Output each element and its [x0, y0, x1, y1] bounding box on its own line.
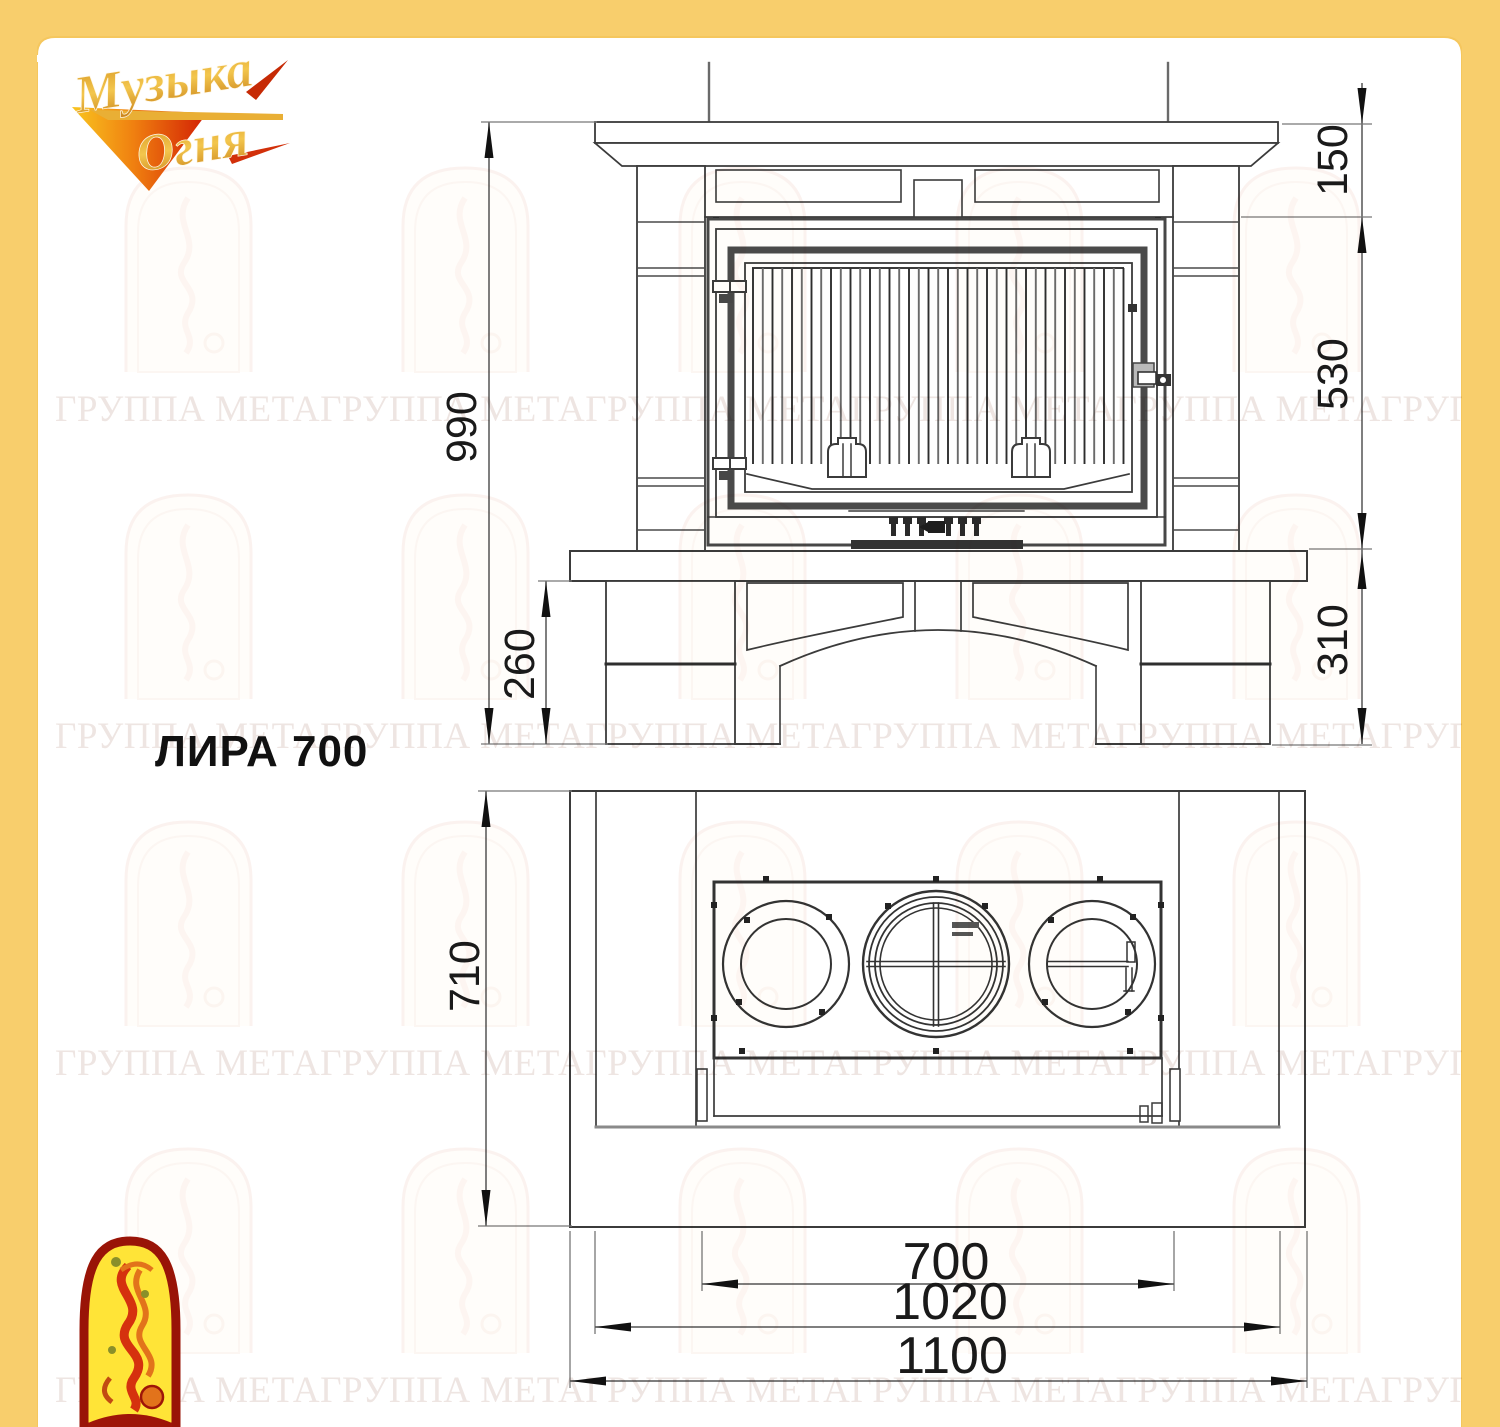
svg-text:ГРУППА МЕТАГРУППА МЕТАГРУППА М: ГРУППА МЕТАГРУППА МЕТАГРУППА МЕТАГРУППА …: [55, 389, 1500, 430]
svg-text:ГРУППА МЕТАГРУППА МЕТАГРУППА М: ГРУППА МЕТАГРУППА МЕТАГРУППА МЕТАГРУППА …: [55, 1370, 1500, 1411]
svg-text:ГРУППА МЕТАГРУППА МЕТАГРУППА М: ГРУППА МЕТАГРУППА МЕТАГРУППА МЕТАГРУППА …: [55, 1043, 1500, 1084]
svg-text:ГРУППА МЕТАГРУППА МЕТАГРУППА М: ГРУППА МЕТАГРУППА МЕТАГРУППА МЕТАГРУППА …: [55, 716, 1500, 757]
